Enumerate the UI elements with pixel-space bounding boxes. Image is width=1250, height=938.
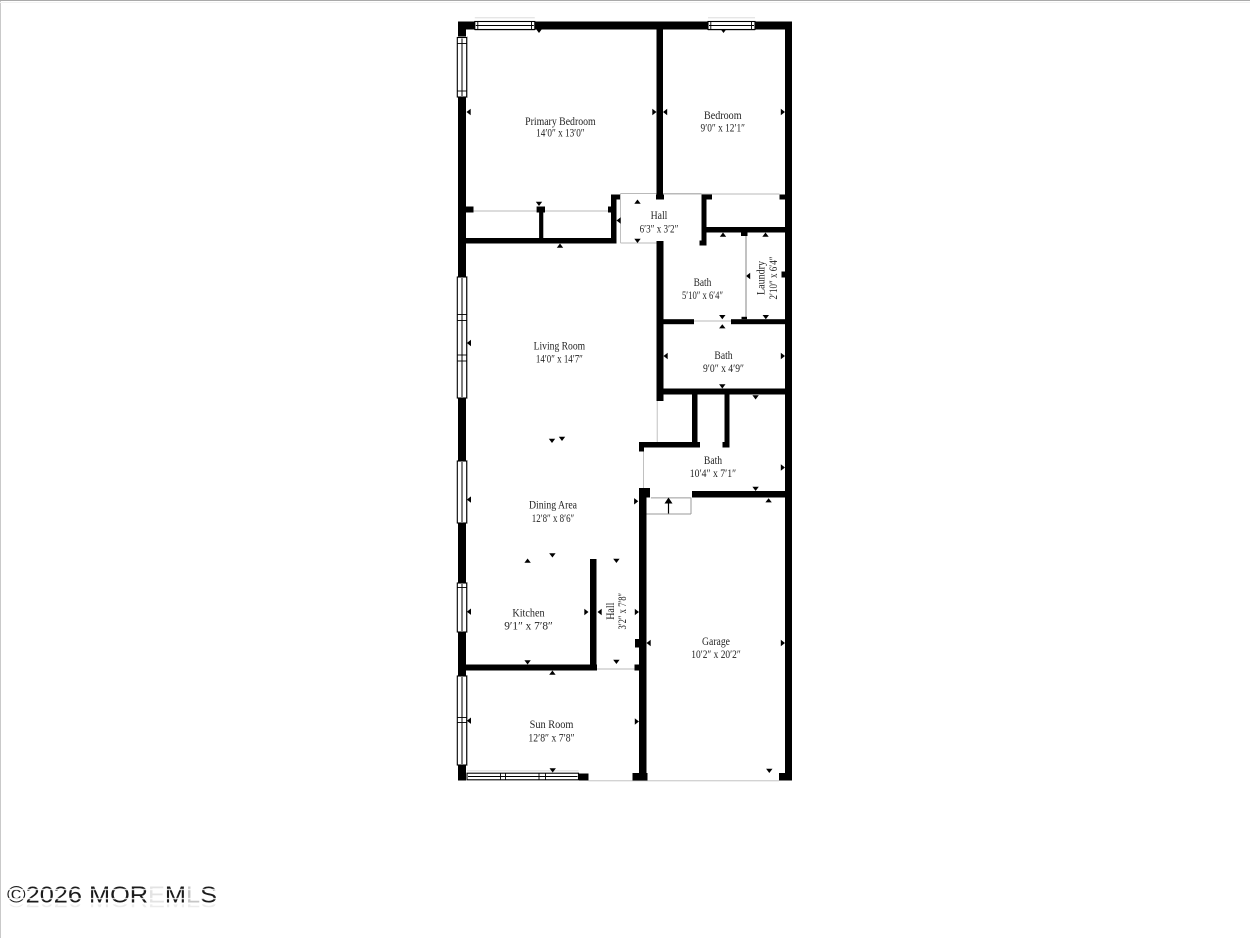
svg-text:Bath: Bath — [694, 275, 712, 289]
svg-text:12′8″ x 8′6″: 12′8″ x 8′6″ — [532, 513, 575, 525]
svg-text:10′2″ x 20′2″: 10′2″ x 20′2″ — [691, 649, 741, 661]
svg-text:Kitchen: Kitchen — [512, 605, 544, 619]
svg-text:Dining Area: Dining Area — [529, 498, 578, 512]
svg-text:Bath: Bath — [704, 453, 722, 467]
svg-text:9′0″ x 12′1″: 9′0″ x 12′1″ — [701, 123, 746, 135]
svg-text:12′8″ x 7′8″: 12′8″ x 7′8″ — [528, 732, 574, 744]
svg-text:Bedroom: Bedroom — [704, 108, 742, 122]
svg-text:6′3″ x 3′2″: 6′3″ x 3′2″ — [640, 224, 679, 236]
svg-text:9′1″ x 7′8″: 9′1″ x 7′8″ — [504, 620, 553, 632]
svg-text:Living Room: Living Room — [534, 338, 586, 352]
svg-text:5′10″ x 6′4″: 5′10″ x 6′4″ — [682, 290, 723, 302]
svg-text:14′0″ x 13′0″: 14′0″ x 13′0″ — [536, 127, 585, 139]
svg-text:Laundry: Laundry — [753, 261, 767, 295]
svg-text:Hall: Hall — [603, 602, 617, 620]
svg-text:2′10″ x 6′4″: 2′10″ x 6′4″ — [768, 256, 780, 299]
svg-text:Bath: Bath — [714, 348, 732, 362]
svg-text:3′2″ x 7′8″: 3′2″ x 7′8″ — [617, 593, 629, 630]
svg-text:14′0″ x 14′7″: 14′0″ x 14′7″ — [536, 354, 583, 366]
svg-text:9′0″ x 4′9″: 9′0″ x 4′9″ — [703, 363, 744, 375]
svg-text:Garage: Garage — [702, 634, 730, 648]
svg-text:Sun Room: Sun Room — [530, 717, 574, 731]
svg-text:10′4″ x 7′1″: 10′4″ x 7′1″ — [690, 468, 737, 480]
svg-text:Primary Bedroom: Primary Bedroom — [525, 114, 596, 128]
svg-text:Hall: Hall — [651, 208, 668, 222]
svg-text:©2026 MOREMLS: ©2026 MOREMLS — [7, 882, 217, 908]
